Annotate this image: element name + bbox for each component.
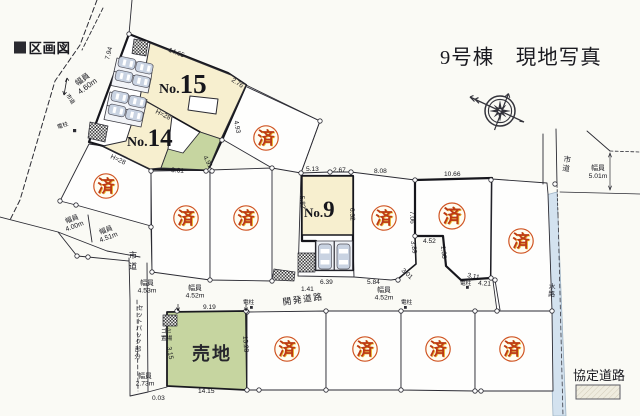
svg-text:済: 済 [504,339,522,359]
svg-text:済: 済 [178,208,196,228]
svg-text:4.53m: 4.53m [138,288,157,295]
svg-text:4.52: 4.52 [423,238,436,245]
svg-text:電柱: 電柱 [243,298,255,306]
svg-text:電柱: 電柱 [401,298,413,306]
svg-text:済: 済 [238,208,256,228]
svg-text:ゴミ: ゴミ [161,327,172,335]
svg-text:済: 済 [443,205,462,226]
svg-text:0.03: 0.03 [152,395,165,402]
svg-text:売地: 売地 [192,343,232,364]
svg-text:区画図: 区画図 [29,41,71,56]
svg-text:6.39: 6.39 [320,279,333,286]
svg-text:9号棟 現地写真: 9号棟 現地写真 [440,46,602,69]
svg-text:幅員: 幅員 [591,163,605,172]
svg-text:道: 道 [129,261,137,271]
svg-text:済: 済 [357,339,375,359]
svg-text:5.82: 5.82 [298,196,306,210]
svg-text:済: 済 [258,128,276,148]
svg-text:分: 分 [134,352,141,361]
svg-text:2.67: 2.67 [333,167,346,174]
svg-text:6.32: 6.32 [348,208,356,222]
svg-text:済: 済 [376,208,394,228]
svg-text:5.13: 5.13 [306,166,319,173]
svg-text:3.61: 3.61 [171,167,185,175]
svg-text:部: 部 [135,344,142,353]
svg-text:4.52m: 4.52m [186,293,205,300]
svg-text:市: 市 [129,250,137,260]
svg-text:置場: 置場 [161,334,173,342]
svg-text:9.19: 9.19 [203,304,216,311]
svg-text:協定道路: 協定道路 [573,368,625,383]
svg-text:済: 済 [513,231,531,251]
svg-text:14.15: 14.15 [198,388,215,395]
svg-text:4.52m: 4.52m [375,295,394,302]
svg-text:7.06: 7.06 [408,211,415,224]
svg-text:幅員: 幅員 [140,278,154,287]
svg-text:ク: ク [135,338,142,346]
svg-text:13.23: 13.23 [241,336,249,353]
svg-text:幅員: 幅員 [138,371,152,380]
svg-text:4.21: 4.21 [478,280,492,288]
svg-text:済: 済 [279,339,297,359]
svg-text:5.84: 5.84 [367,279,380,286]
svg-text:1.38: 1.38 [439,245,447,259]
svg-text:幅員: 幅員 [377,285,391,294]
svg-text:2.73m: 2.73m [136,381,155,388]
svg-text:5.01m: 5.01m [589,173,608,180]
svg-text:済: 済 [98,176,116,196]
svg-text:済: 済 [430,339,448,359]
svg-text:電柱: 電柱 [460,279,472,287]
svg-text:幅員: 幅員 [188,283,202,292]
svg-text:8.08: 8.08 [374,168,387,175]
svg-text:10.66: 10.66 [444,171,461,178]
